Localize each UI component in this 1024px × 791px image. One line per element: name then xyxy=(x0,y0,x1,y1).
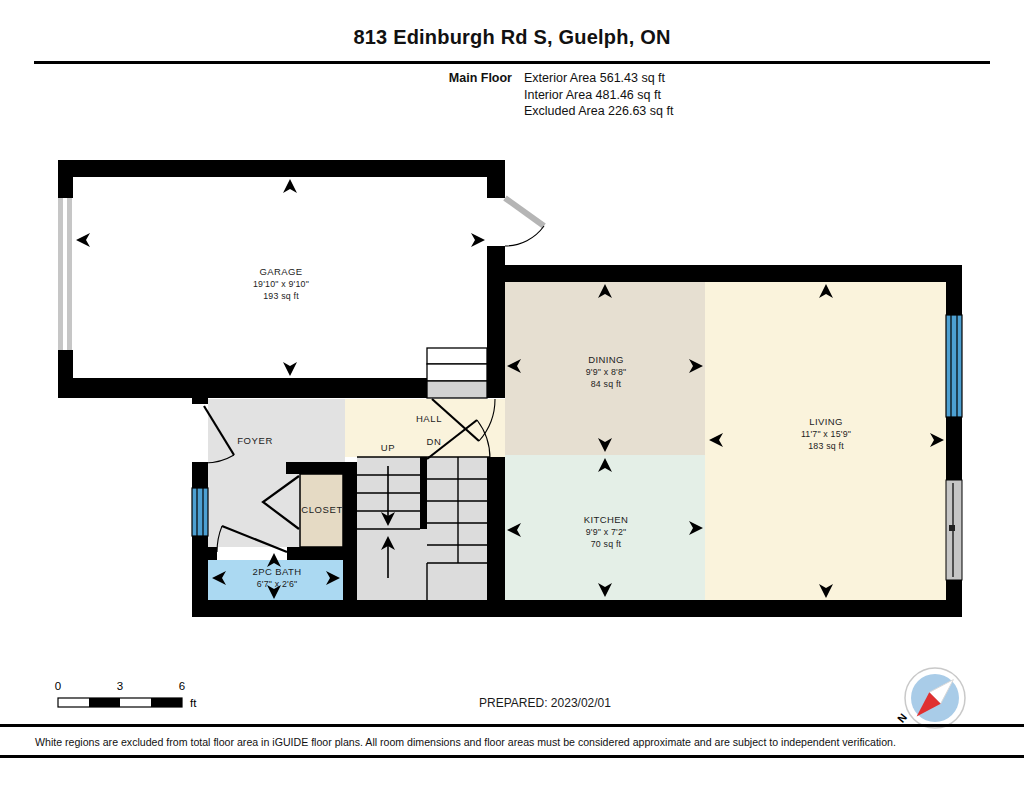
garage-door xyxy=(58,198,72,350)
stairs-right-wall xyxy=(487,457,505,617)
footer-top-rule xyxy=(0,724,1024,727)
floor-plan-drawing xyxy=(0,0,1024,791)
main-top-wall xyxy=(487,265,962,282)
stairs-left-wall xyxy=(343,462,357,617)
garage-steps xyxy=(427,348,487,398)
bath-label: 2PC BATH 6'7" x 2'6" xyxy=(253,566,302,590)
closet-label: CLOSET xyxy=(301,504,343,515)
scale-unit-label: ft xyxy=(190,697,196,709)
footer-bottom-rule xyxy=(0,755,1024,758)
kitchen-label: KITCHEN 9'9" x 7'2" 70 sq ft xyxy=(584,514,629,550)
prepared-date: PREPARED: 2023/02/01 xyxy=(479,696,611,710)
closet-top-wall xyxy=(286,462,345,474)
living-window xyxy=(946,315,962,417)
hall-label: HALL xyxy=(416,413,442,424)
scale-bar xyxy=(58,698,182,707)
footer-disclaimer: White regions are excluded from total fl… xyxy=(35,736,989,748)
main-bottom-wall xyxy=(192,600,962,617)
garage-bottom-wall xyxy=(58,378,427,398)
garage-side-door xyxy=(505,198,544,246)
living-label: LIVING 11'7" x 15'9" 183 sq ft xyxy=(801,416,851,452)
scale-tick-0: 0 xyxy=(55,680,61,692)
foyer-label: FOYER xyxy=(237,435,273,446)
sliding-door xyxy=(946,480,962,580)
dining-label: DINING 9'9" x 8'8" 84 sq ft xyxy=(586,354,627,390)
stairs-up-label: UP xyxy=(381,442,395,453)
floor-plan-page: 813 Edinburgh Rd S, Guelph, ON Main Floo… xyxy=(0,0,1024,791)
stairs-mid-wall xyxy=(420,457,427,529)
stairs-dn-label: DN xyxy=(427,436,442,447)
hall-area xyxy=(345,399,505,457)
scale-tick-3: 3 xyxy=(117,680,123,692)
garage-label: GARAGE 19'10" x 9'10" 193 sq ft xyxy=(253,266,309,302)
garage-top-wall xyxy=(58,160,505,177)
bath-wall xyxy=(287,547,345,560)
compass-icon xyxy=(905,668,965,728)
foyer-window xyxy=(192,488,208,536)
scale-tick-6: 6 xyxy=(179,680,185,692)
